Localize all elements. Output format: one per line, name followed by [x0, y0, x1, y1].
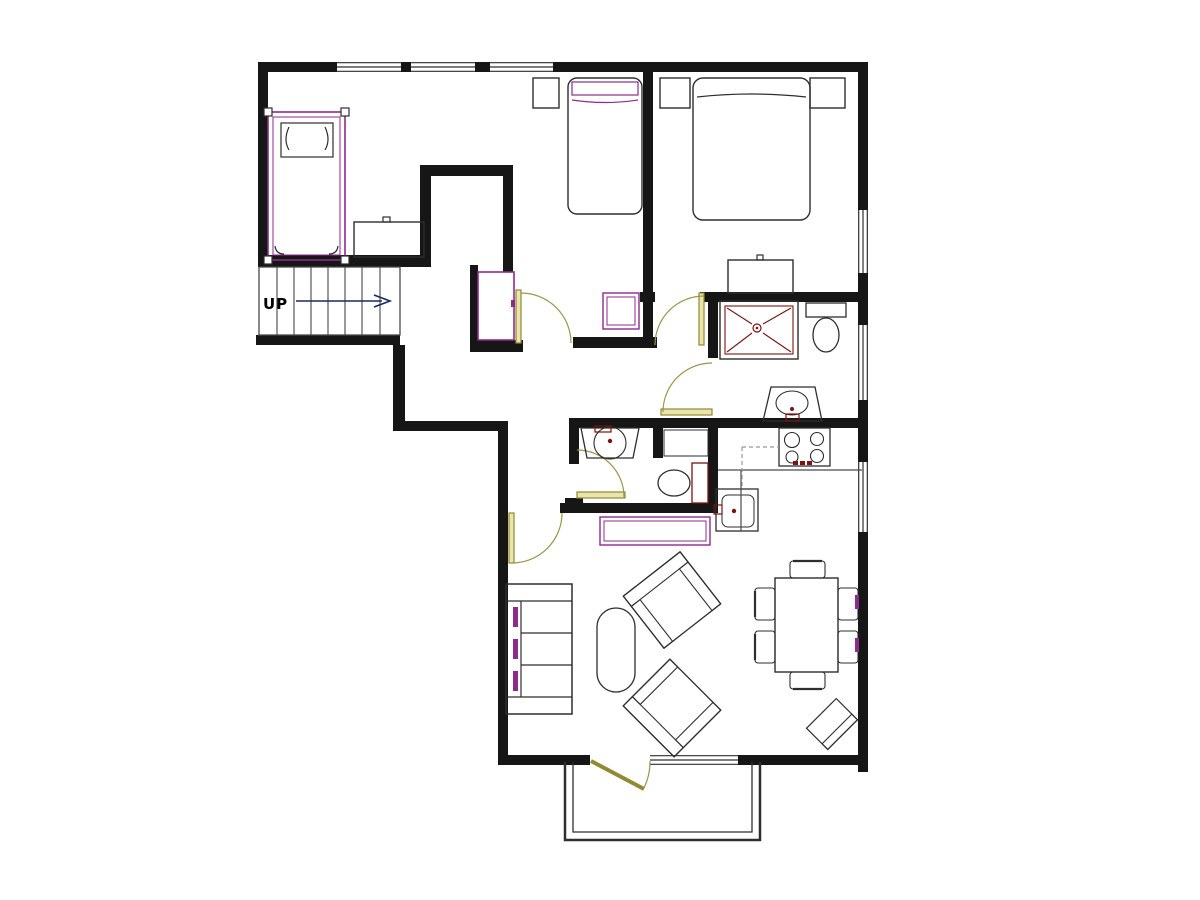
bed-single-bedroom1-part — [264, 108, 272, 116]
wall-segment — [393, 345, 405, 431]
sofa-part — [513, 639, 518, 659]
sink-powder-part — [608, 439, 612, 443]
door-leaf — [577, 492, 625, 498]
coffee-table — [597, 608, 635, 692]
wall-segment — [640, 292, 655, 302]
wall-segment — [560, 503, 718, 513]
wall-segment — [470, 265, 478, 352]
toilet-bathroom-part — [806, 303, 846, 317]
shower-part — [727, 308, 752, 324]
nightstand-bedroom2 — [533, 78, 559, 108]
wall-segment — [420, 165, 431, 267]
accent-chair-part — [822, 714, 857, 749]
bed-single-bedroom1-part — [341, 256, 349, 264]
armchair-1-part — [623, 552, 720, 648]
armchair-2-part — [623, 659, 721, 757]
door-leaf — [591, 761, 644, 789]
dining-chair-top-part — [790, 561, 825, 578]
toilet-bathroom — [806, 303, 846, 352]
dresser-bedroom3-part — [728, 260, 793, 293]
bed-single-bedroom2-part — [572, 100, 638, 103]
wall-segment — [420, 165, 513, 176]
dining-chair-left-2 — [755, 631, 775, 663]
bed-double-bedroom3 — [693, 78, 810, 220]
nightstand-bedroom3-right-part — [810, 78, 845, 108]
closet-hall-part — [511, 300, 515, 307]
dining-chair-top — [790, 561, 825, 578]
wall-segment — [569, 418, 868, 428]
shower-part — [756, 327, 759, 330]
bed-single-bedroom1-part — [275, 246, 284, 254]
sink-bathroom — [763, 387, 822, 421]
porch-layer — [565, 762, 760, 840]
closet-hall-part — [478, 272, 514, 340]
nightstand-bedroom3-left — [660, 78, 690, 108]
dining-chair-left-1 — [755, 588, 775, 620]
wall-niche-part — [664, 430, 708, 456]
stove-part — [793, 461, 798, 465]
sofa-part — [513, 671, 518, 691]
console-table-part — [604, 521, 706, 541]
furniture-layer — [264, 78, 862, 757]
armchair-2 — [623, 659, 721, 757]
door-leaf — [516, 290, 521, 343]
door-leaf — [661, 409, 712, 415]
porch-inner-line — [573, 762, 752, 832]
sofa — [506, 584, 572, 714]
dresser-bedroom3-part — [757, 255, 763, 260]
stove-part — [807, 461, 812, 465]
armchair-1-part — [623, 552, 688, 607]
bed-single-bedroom2-part — [572, 82, 638, 95]
shower-part — [727, 333, 752, 352]
kitchen-sink — [714, 489, 758, 531]
desk-bedroom1-part — [354, 222, 424, 257]
dining-chair-bottom-part — [790, 672, 825, 689]
wall-segment — [256, 335, 400, 345]
cabinet-bedroom2-part — [607, 297, 635, 325]
bed-single-bedroom1-part — [325, 127, 328, 150]
closet-hall — [478, 272, 515, 340]
wall-segment — [569, 418, 579, 464]
wall-niche — [664, 430, 708, 456]
toilet-powder-part — [692, 463, 708, 503]
shower-part — [763, 308, 791, 324]
armchair-1 — [623, 552, 720, 648]
door-leaf — [509, 513, 514, 563]
bed-single-bedroom1-part — [329, 246, 338, 254]
armchair-2-part — [623, 697, 683, 757]
wall-segment — [643, 62, 653, 347]
bed-double-bedroom3-part — [693, 78, 810, 220]
dining-chair-right-2 — [838, 631, 859, 663]
dining-chair-right-1-part — [855, 595, 859, 609]
bed-single-bedroom1-part — [273, 117, 340, 255]
sink-powder — [581, 426, 639, 459]
bed-single-bedroom2 — [568, 78, 642, 214]
stove-part — [811, 450, 824, 463]
bed-single-bedroom1 — [264, 108, 349, 264]
toilet-powder-part — [658, 470, 690, 496]
dining-chair-right-2-part — [855, 638, 859, 652]
dining-chair-left-1-part — [755, 588, 775, 620]
wall-segment — [258, 62, 268, 267]
dining-table-part — [775, 578, 838, 672]
shower-part — [720, 301, 798, 359]
coffee-table-part — [597, 608, 635, 692]
shower-part — [763, 333, 791, 352]
dining-chair-left-2-part — [755, 631, 775, 663]
console-table — [600, 517, 710, 545]
wall-segment — [405, 421, 500, 431]
shower — [720, 301, 798, 359]
wall-segment — [738, 755, 868, 765]
kitchen-sink-part — [722, 495, 754, 527]
sink-bathroom-part — [763, 387, 822, 421]
stairs-up-label: UP — [263, 295, 288, 313]
sofa-part — [513, 607, 518, 627]
nightstand-bedroom3-right — [810, 78, 845, 108]
wall-segment — [470, 340, 523, 352]
kitchen-sink-part — [732, 509, 736, 513]
nightstand-bedroom2-part — [533, 78, 559, 108]
accent-chair-part — [807, 699, 858, 750]
armchair-2-part — [676, 702, 721, 747]
stove-part — [811, 433, 824, 446]
dining-chair-right-1 — [838, 588, 859, 620]
armchair-1-part — [631, 600, 672, 649]
door-swing-arc — [644, 761, 650, 788]
bed-single-bedroom2-part — [568, 78, 642, 214]
stove-part — [800, 461, 805, 465]
wall-segment — [708, 302, 718, 358]
desk-bedroom1-part — [383, 217, 390, 222]
door-swing-arc — [521, 293, 571, 343]
toilet-bathroom-part — [813, 318, 839, 352]
wall-segment — [858, 755, 868, 772]
bed-double-bedroom3-part — [697, 94, 806, 97]
wall-segment — [653, 428, 663, 458]
door-swing-arc — [512, 513, 562, 563]
door-swing-arc — [655, 296, 704, 345]
desk-bedroom1 — [354, 217, 424, 257]
wall-segment — [858, 62, 868, 772]
nightstand-bedroom3-left-part — [660, 78, 690, 108]
porch-outline — [565, 762, 760, 840]
wall-segment — [503, 165, 513, 272]
dining-table — [775, 578, 838, 672]
door-leaf — [699, 293, 704, 345]
dining-chair-bottom — [790, 672, 825, 689]
bed-single-bedroom1-part — [341, 108, 349, 116]
cabinet-bedroom2-part — [603, 293, 639, 329]
bed-single-bedroom1-part — [264, 256, 272, 264]
sink-bathroom-part — [776, 391, 808, 415]
floor-plan-canvas: UP — [0, 0, 1200, 900]
armchair-2-part — [632, 659, 677, 704]
wall-segment — [498, 755, 590, 765]
floor-plan-page: UP — [0, 0, 1200, 900]
dresser-bedroom3 — [728, 255, 793, 293]
door-swing-arc — [663, 363, 712, 412]
toilet-powder — [658, 463, 708, 503]
stove-part — [785, 433, 800, 448]
stove — [779, 428, 830, 466]
armchair-1-part — [679, 562, 720, 611]
bed-single-bedroom1-part — [286, 127, 289, 150]
sink-bathroom-part — [790, 407, 794, 411]
accent-chair — [807, 699, 858, 750]
cabinet-bedroom2 — [603, 293, 639, 329]
